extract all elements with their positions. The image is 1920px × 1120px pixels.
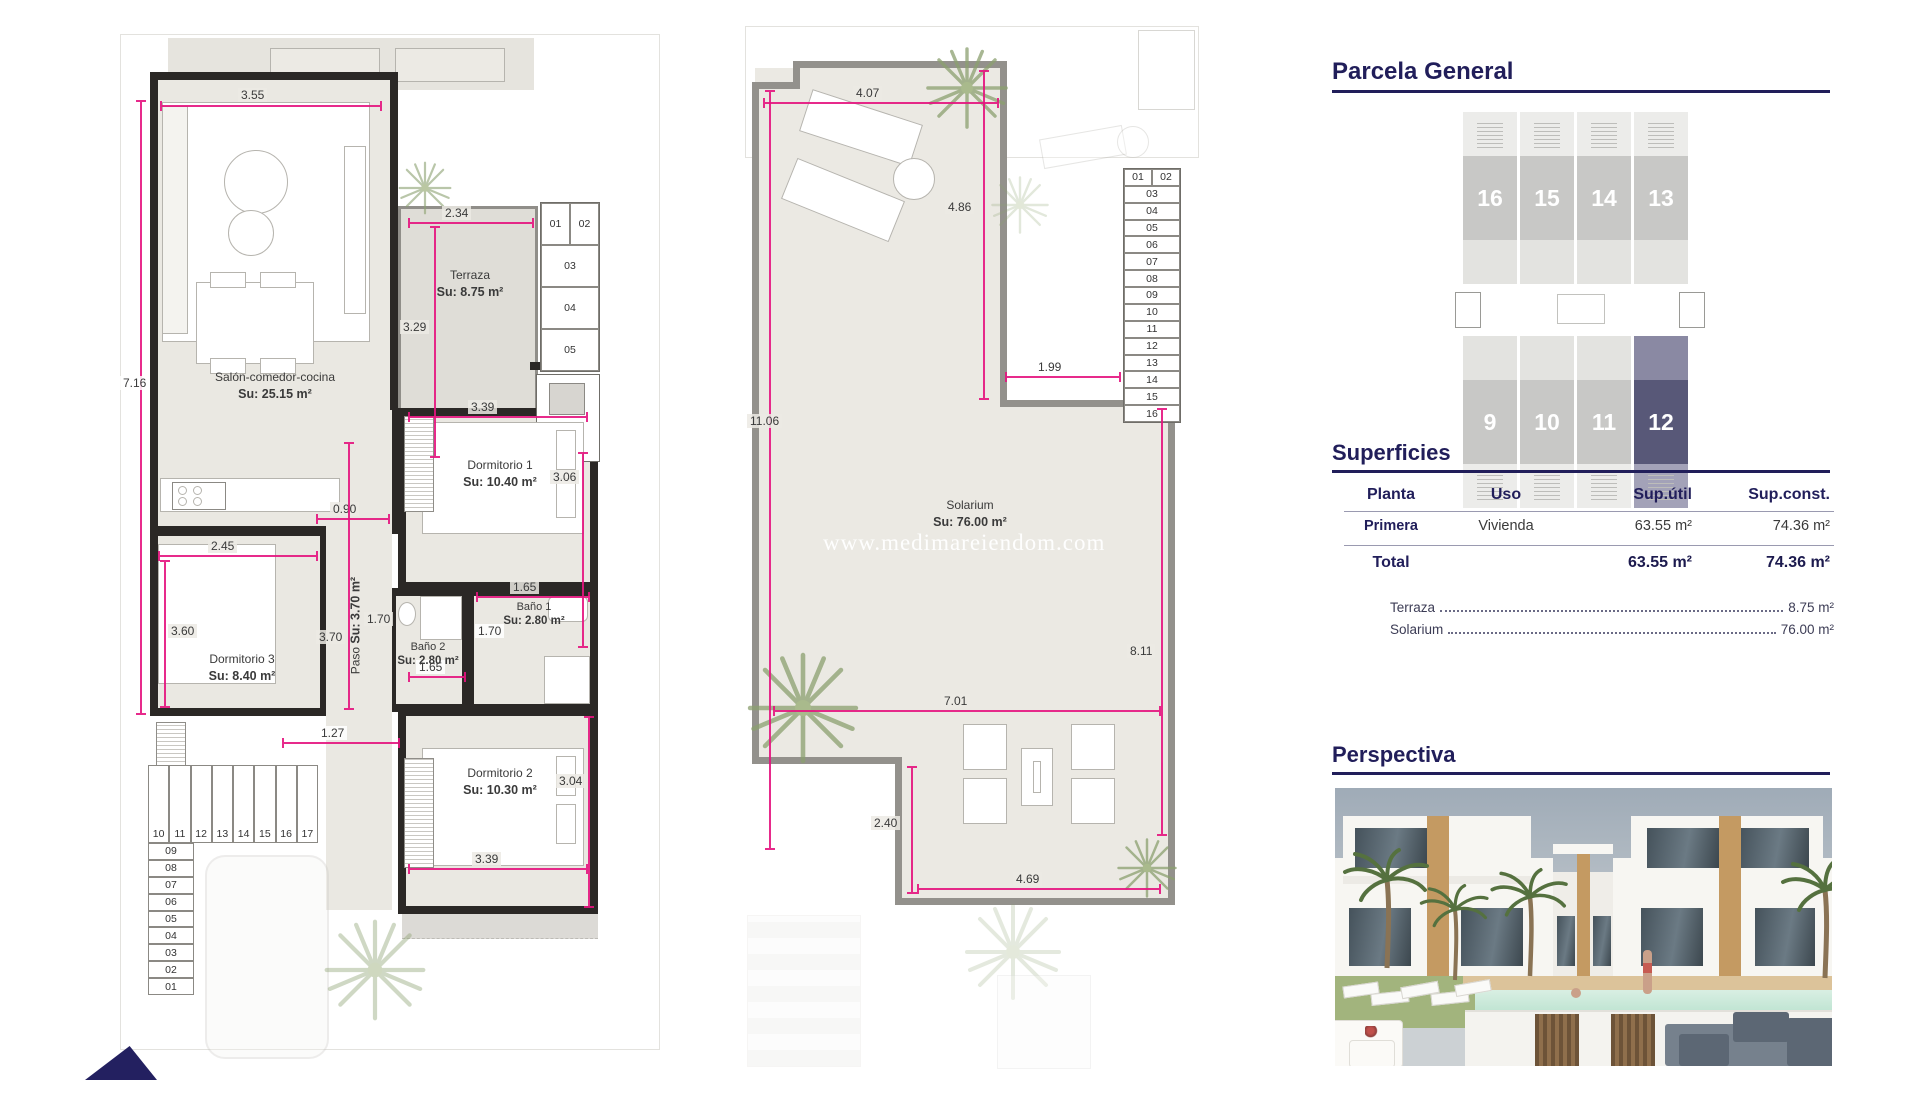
parcela-unit: 15 — [1520, 112, 1574, 284]
wood-gate — [1535, 1014, 1579, 1066]
perspectiva-title: Perspectiva — [1332, 742, 1456, 768]
dim-dorm2-height: 3.04 — [556, 774, 585, 788]
tv-cabinet — [344, 146, 366, 314]
dim-lower-height: 2.40 — [871, 816, 900, 830]
stair-step: 16 — [276, 765, 297, 843]
extra-row: Solarium 76.00 m² — [1390, 622, 1834, 637]
shower — [544, 656, 590, 704]
unit-patio — [1463, 240, 1517, 284]
parcela-unit: 16 — [1463, 112, 1517, 284]
pillow — [556, 430, 576, 470]
dim-line — [158, 555, 318, 557]
dim-paso-height: 3.70 — [316, 630, 345, 644]
unit-number: 14 — [1577, 156, 1631, 240]
dim-line — [917, 888, 1161, 890]
dim-line — [140, 100, 142, 715]
unit-number: 9 — [1463, 380, 1517, 464]
couch-cushion — [1733, 1012, 1789, 1042]
chair — [260, 272, 296, 288]
label-salon: Salón-comedor-cocinaSu: 25.15 m² — [190, 370, 360, 402]
parcela-row-top: 16 15 14 13 — [1463, 112, 1697, 284]
side-table — [893, 158, 935, 200]
unit-patio — [1520, 336, 1574, 380]
dim-dorm1-height: 3.06 — [550, 470, 579, 484]
unit-garden — [1520, 112, 1574, 156]
col-header-planta: Planta — [1336, 480, 1446, 510]
title-rule — [1332, 90, 1830, 93]
col-header-sup-const: Sup.const. — [1696, 480, 1834, 510]
dim-line — [773, 710, 1161, 712]
stair-step: 05 — [148, 911, 194, 928]
superficies-table-total: Total 63.55 m² 74.36 m² — [1336, 548, 1834, 578]
stair-step: 11 — [169, 765, 190, 843]
dining-table — [196, 282, 314, 364]
side-table — [228, 210, 274, 256]
porch-step — [402, 914, 598, 939]
palm-tree — [1415, 884, 1495, 988]
floor-plan-primera: 0102030405 1011121314151617 090807060504… — [120, 10, 660, 1070]
stair-step: 17 — [297, 765, 318, 843]
cell-empty — [1446, 548, 1566, 578]
wood-gate — [1611, 1014, 1655, 1066]
palm-tree — [1020, 205, 1320, 355]
dim-line — [476, 596, 590, 598]
dim-dorm1-width: 3.39 — [468, 400, 497, 414]
parcela-unit: 13 — [1634, 112, 1688, 284]
dim-top-width: 4.07 — [853, 86, 882, 100]
dim-line — [282, 742, 400, 744]
extra-row: Terraza 8.75 m² — [1390, 600, 1834, 615]
wardrobe — [404, 416, 434, 512]
dim-upper-height: 4.86 — [945, 200, 974, 214]
person-standing — [1643, 950, 1652, 994]
dim-line — [983, 70, 985, 400]
cell-sup-const: 74.36 m² — [1696, 512, 1834, 540]
stairs-lower-vertical: 090807060504030201 — [148, 843, 194, 995]
cell-total-const: 74.36 m² — [1696, 548, 1834, 578]
cell-total-label: Total — [1336, 548, 1446, 578]
dim-line — [164, 560, 166, 708]
stove — [172, 482, 226, 510]
col-header-uso: Uso — [1446, 480, 1566, 510]
superficies-extras: Terraza 8.75 m² Solarium 76.00 m² — [1390, 600, 1834, 644]
unit-patio — [1463, 336, 1517, 380]
stair-step: 14 — [1124, 371, 1180, 388]
stair-step: 14 — [233, 765, 254, 843]
watermark: www.medimareiendom.com — [823, 530, 1105, 556]
stair-step: 07 — [148, 877, 194, 894]
coffee-table — [224, 150, 288, 214]
unit-patio — [1634, 336, 1688, 380]
parcela-general-title: Parcela General — [1332, 58, 1513, 86]
palm-tree — [375, 970, 675, 1120]
unit-patio — [1577, 336, 1631, 380]
stair-step: 13 — [212, 765, 233, 843]
stair-step: 06 — [148, 894, 194, 911]
window — [1593, 916, 1611, 966]
cell-uso: Vivienda — [1446, 512, 1566, 540]
cell-sup-util: 63.55 m² — [1566, 512, 1696, 540]
ghost-stairs — [747, 915, 861, 1067]
label-dorm3: Dormitorio 3Su: 8.40 m² — [192, 652, 292, 684]
stair-step: 13 — [1124, 355, 1180, 372]
title-rule — [1332, 772, 1830, 775]
table-line — [1344, 545, 1834, 546]
stairs-lower-horizontal: 1011121314151617 — [148, 765, 318, 843]
dotted-leader — [1448, 631, 1775, 634]
flower-bouquet — [1365, 1026, 1379, 1038]
pillow — [556, 804, 576, 844]
dim-left-height: 11.06 — [747, 414, 782, 428]
palm-tree — [803, 708, 1103, 858]
label-terraza: TerrazaSu: 8.75 m² — [425, 268, 515, 300]
pillar — [1719, 816, 1741, 978]
unit-number: 15 — [1520, 156, 1574, 240]
ghost-planter — [997, 975, 1091, 1069]
dim-line — [1005, 376, 1121, 378]
dim-notch-width: 1.99 — [1035, 360, 1064, 374]
car-outline — [205, 855, 329, 1059]
superficies-table-header: Planta Uso Sup.útil Sup.const. — [1336, 480, 1834, 510]
dim-dorm3-height: 3.60 — [168, 624, 197, 638]
dim-line — [1161, 408, 1163, 836]
wc — [398, 602, 416, 626]
dim-left-height: 7.16 — [120, 376, 149, 390]
dim-line — [434, 226, 436, 458]
dim-line — [769, 90, 771, 850]
window — [1647, 828, 1719, 868]
palm-tree — [1775, 858, 1832, 988]
superficies-title: Superficies — [1332, 440, 1451, 466]
pillar — [1577, 844, 1590, 978]
parcela-unit: 14 — [1577, 112, 1631, 284]
unit-number: 16 — [1463, 156, 1517, 240]
label-bano2: Baño 2Su: 2.80 m² — [380, 640, 476, 669]
appliance — [549, 383, 585, 415]
couch-cushion — [1787, 1018, 1832, 1066]
dim-dorm3-width: 2.45 — [208, 539, 237, 553]
dim-line — [408, 222, 534, 224]
pillow — [556, 478, 576, 518]
extra-value: 8.75 m² — [1788, 600, 1834, 615]
dim-line — [160, 105, 382, 107]
unit-number: 12 — [1634, 380, 1688, 464]
deck-bench — [395, 48, 505, 82]
unit-number: 10 — [1520, 380, 1574, 464]
cell-total-util: 63.55 m² — [1566, 548, 1696, 578]
stair-step: 08 — [148, 860, 194, 877]
palm-tree — [1485, 868, 1575, 985]
perspectiva-render — [1335, 788, 1832, 1066]
wall — [895, 898, 1175, 905]
unit-garden — [1634, 112, 1688, 156]
chair — [210, 272, 246, 288]
dotted-leader — [1440, 609, 1783, 612]
extra-label: Terraza — [1390, 600, 1435, 615]
dim-hall: 0.90 — [330, 502, 359, 516]
title-rule — [1332, 470, 1830, 473]
person-in-pool — [1571, 988, 1581, 998]
superficies-table-row: Primera Vivienda 63.55 m² 74.36 m² — [1336, 512, 1834, 540]
dim-line — [763, 102, 999, 104]
unit-patio — [1634, 240, 1688, 284]
dim-bano1-width: 1.65 — [510, 580, 539, 594]
dim-terraza-height: 3.29 — [400, 320, 429, 334]
dim-line — [408, 868, 588, 870]
dim-line — [408, 676, 466, 678]
dim-entrance: 1.27 — [318, 726, 347, 740]
stair-step: 09 — [148, 843, 194, 860]
pool — [1475, 990, 1832, 1012]
label-solarium: SolariumSu: 76.00 m² — [915, 498, 1025, 530]
parcela-road — [1463, 286, 1697, 334]
shower — [420, 596, 462, 640]
extra-value: 76.00 m² — [1781, 622, 1834, 637]
parcela-diagram: 16 15 14 13 9 10 11 — [1463, 112, 1697, 508]
couch-cushion — [1679, 1034, 1729, 1066]
stair-step: 16 — [1124, 405, 1180, 422]
dim-line — [582, 452, 584, 648]
center-parapet — [1553, 844, 1613, 854]
stair-step: 15 — [1124, 388, 1180, 405]
dim-living-width: 3.55 — [238, 88, 267, 102]
dim-bano2-side: 1.70 — [364, 612, 393, 626]
dim-right-height: 8.11 — [1127, 644, 1155, 658]
wall — [752, 82, 800, 89]
dim-line — [316, 518, 390, 520]
dim-mid-width: 7.01 — [941, 694, 970, 708]
dim-dorm2-width: 3.39 — [472, 852, 501, 866]
outdoor-table-white — [1349, 1040, 1395, 1066]
dim-line — [911, 766, 913, 894]
extra-label: Solarium — [1390, 622, 1443, 637]
stair-step: 10 — [148, 765, 169, 843]
stair-step: 01 — [148, 978, 194, 995]
unit-garden — [1577, 112, 1631, 156]
dim-line — [588, 716, 590, 908]
unit-garden — [1463, 112, 1517, 156]
label-dorm1: Dormitorio 1Su: 10.40 m² — [450, 458, 550, 490]
stair-step: 15 — [254, 765, 275, 843]
col-header-sup-util: Sup.útil — [1566, 480, 1696, 510]
dim-bottom-width: 4.69 — [1013, 872, 1042, 886]
wall — [1168, 400, 1175, 905]
stair-step: 04 — [148, 927, 194, 944]
dim-line — [408, 416, 588, 418]
wardrobe — [404, 758, 434, 868]
stair-step: 03 — [148, 944, 194, 961]
cell-planta: Primera — [1336, 512, 1446, 540]
sofa — [162, 106, 188, 334]
floor-plan-solarium: 01020304050607080910111213141516 4.07 4.… — [745, 10, 1215, 1070]
label-paso: Paso Su: 3.70 m² — [348, 578, 365, 674]
unit-patio — [1520, 240, 1574, 284]
label-dorm2: Dormitorio 2Su: 10.30 m² — [450, 766, 550, 798]
unit-number: 11 — [1577, 380, 1631, 464]
label-bano1: Baño 1Su: 2.80 m² — [486, 600, 582, 629]
unit-number: 13 — [1634, 156, 1688, 240]
stair-step: 12 — [191, 765, 212, 843]
dim-terraza-width: 2.34 — [442, 206, 471, 220]
stair-step: 02 — [148, 961, 194, 978]
unit-patio — [1577, 240, 1631, 284]
